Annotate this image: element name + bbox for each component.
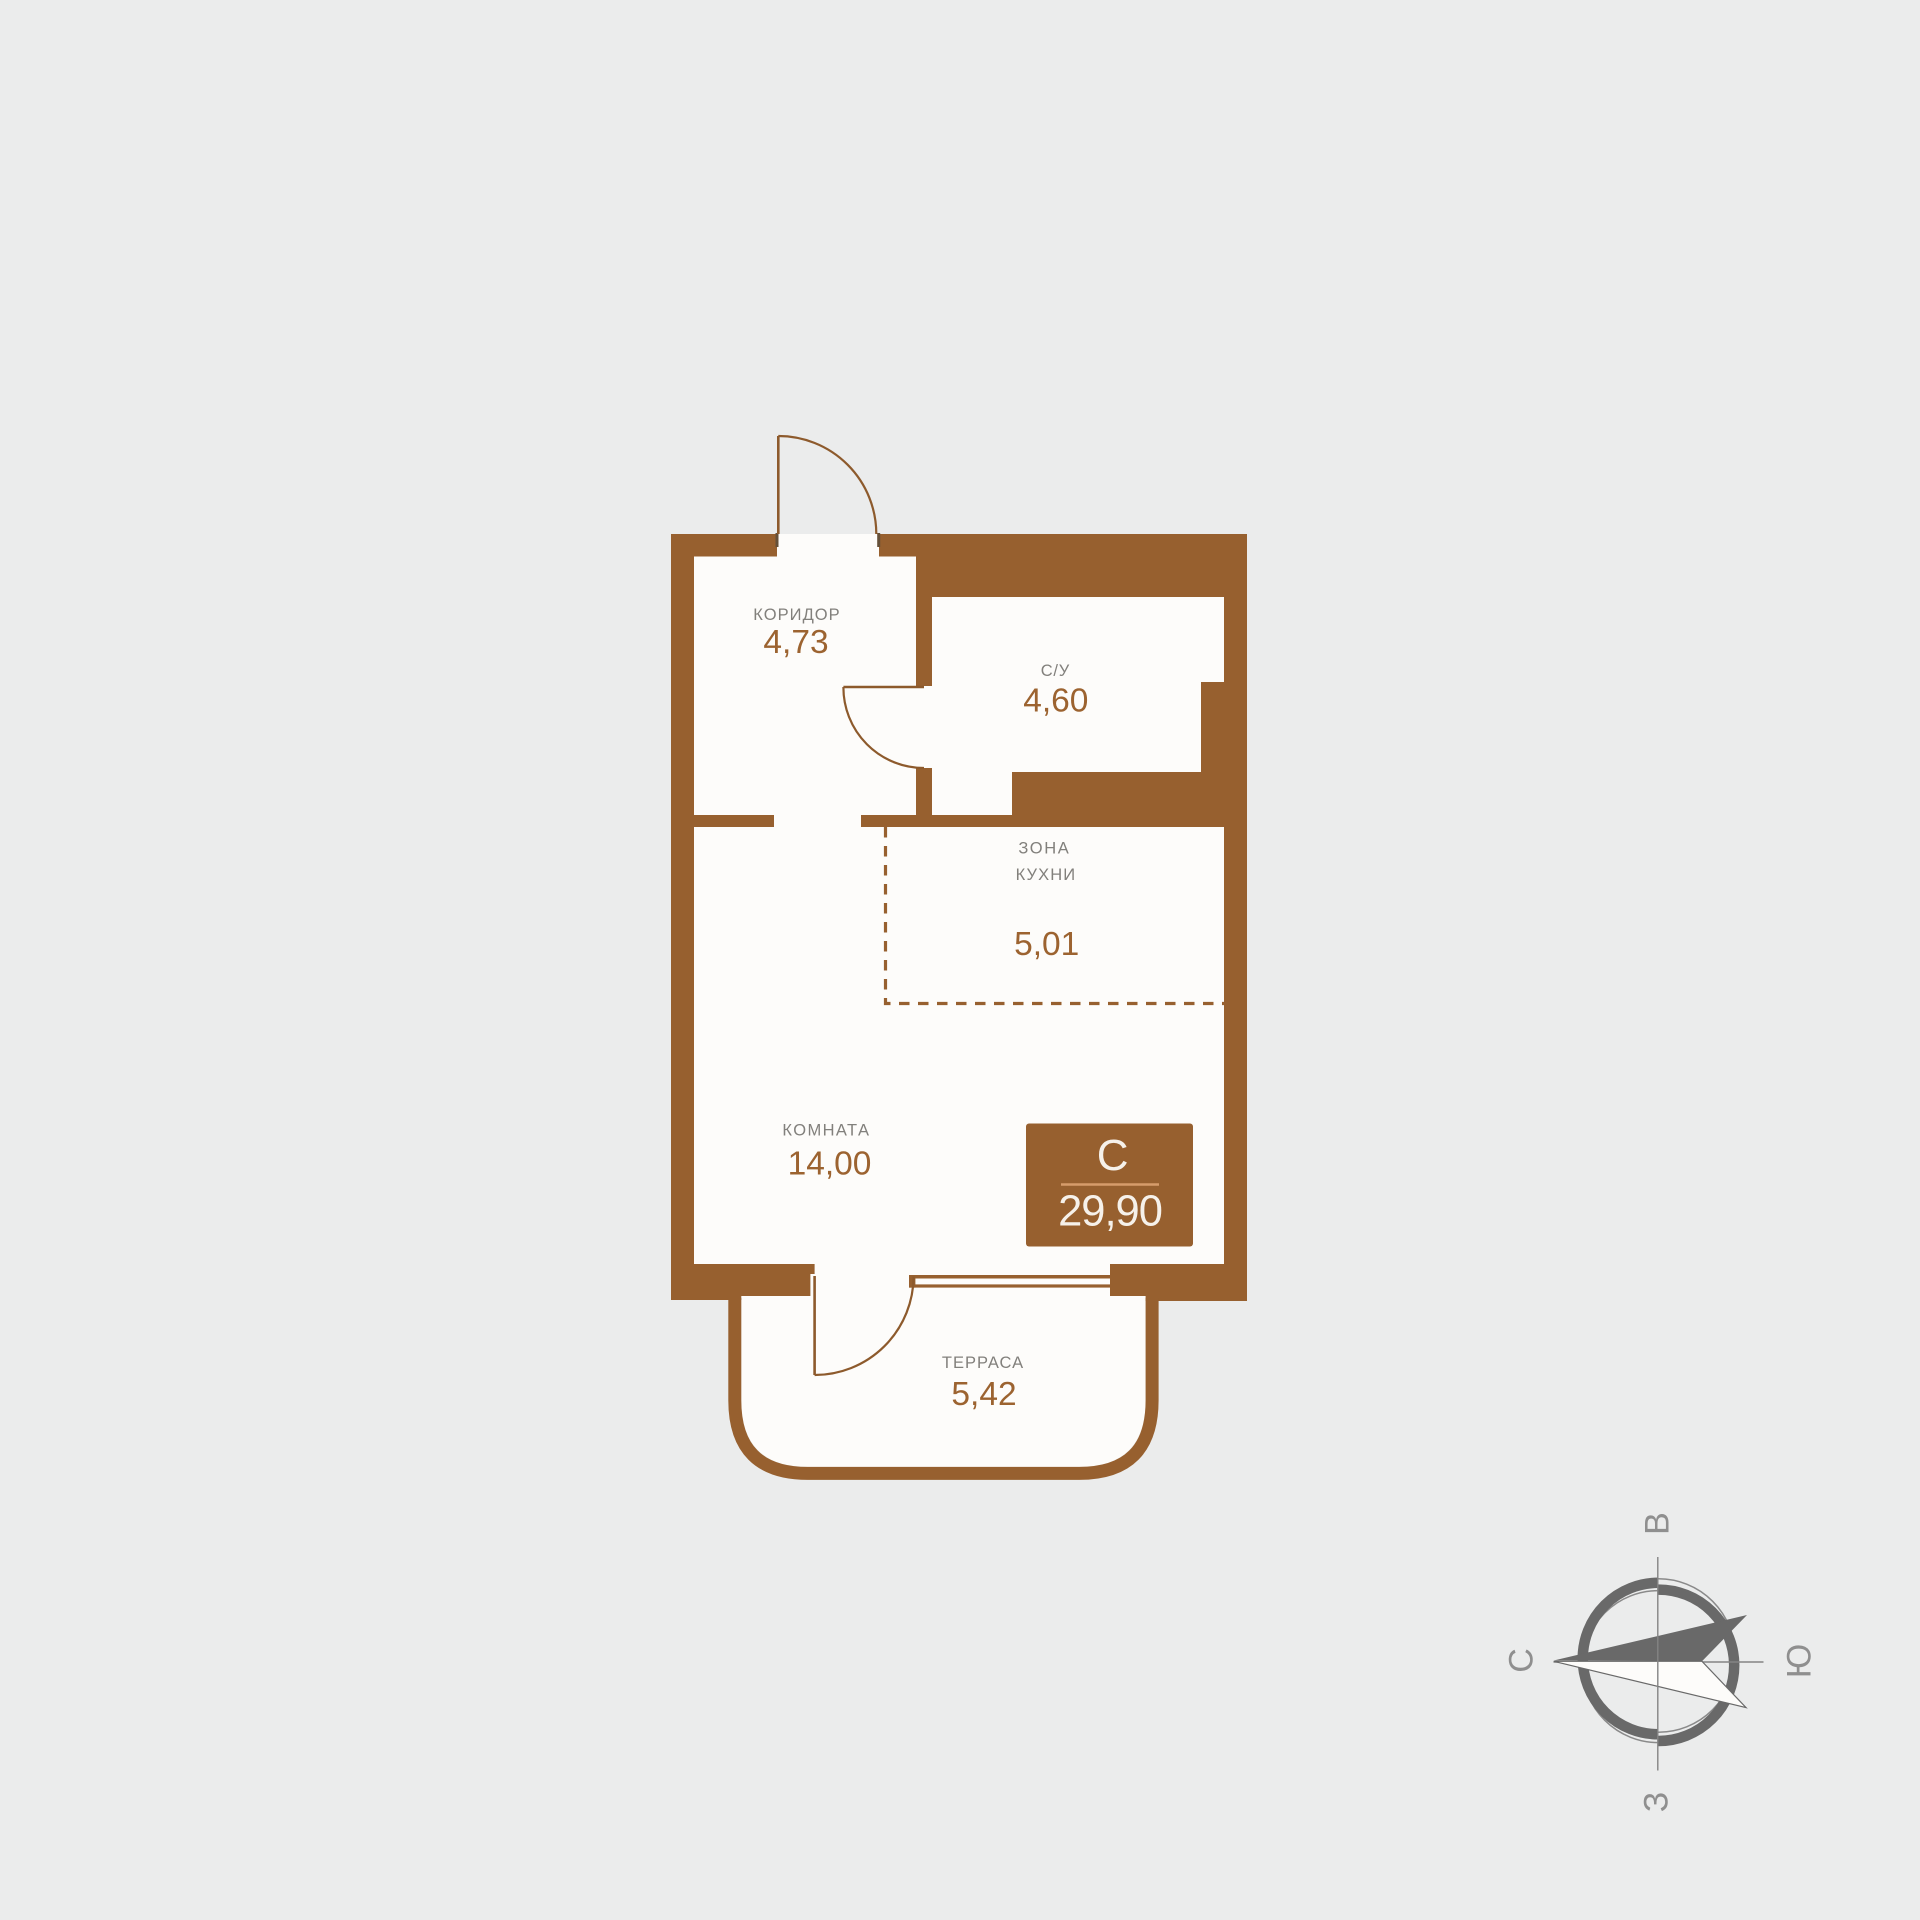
svg-text:З: З bbox=[1638, 1792, 1676, 1813]
svg-text:ТЕРРАСА: ТЕРРАСА bbox=[942, 1354, 1024, 1372]
svg-text:5,42: 5,42 bbox=[951, 1376, 1016, 1413]
svg-text:Ю: Ю bbox=[1781, 1644, 1819, 1678]
svg-text:29,90: 29,90 bbox=[1058, 1188, 1162, 1236]
svg-text:КУХНИ: КУХНИ bbox=[1016, 866, 1077, 884]
svg-text:ЗОНА: ЗОНА bbox=[1018, 839, 1070, 857]
svg-text:5,01: 5,01 bbox=[1014, 926, 1079, 963]
svg-text:С: С bbox=[1097, 1131, 1129, 1180]
svg-text:КОМНАТА: КОМНАТА bbox=[782, 1121, 870, 1139]
svg-text:4,73: 4,73 bbox=[763, 624, 828, 661]
svg-text:14,00: 14,00 bbox=[788, 1146, 872, 1183]
svg-text:В: В bbox=[1639, 1512, 1677, 1535]
svg-text:КОРИДОР: КОРИДОР bbox=[753, 606, 841, 624]
svg-text:С: С bbox=[1502, 1648, 1540, 1673]
svg-text:С/У: С/У bbox=[1041, 662, 1070, 680]
svg-text:4,60: 4,60 bbox=[1023, 683, 1088, 720]
